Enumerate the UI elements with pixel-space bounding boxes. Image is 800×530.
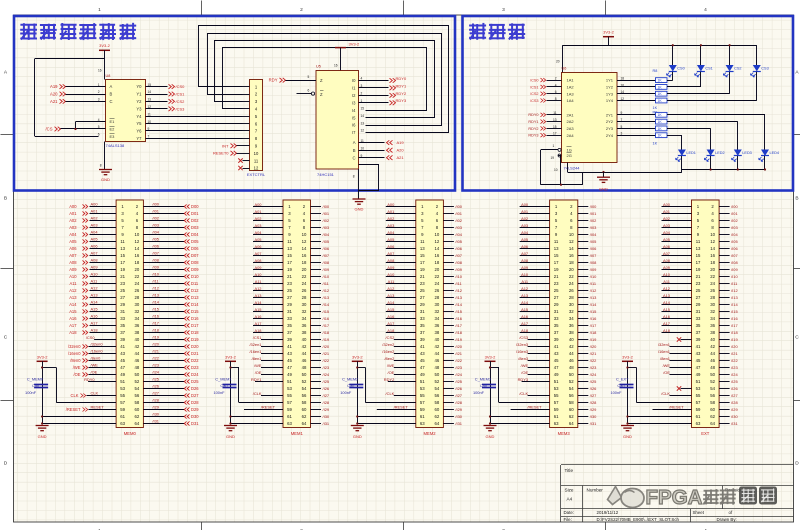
svg-text:54: 54 — [435, 386, 440, 391]
svg-text:A19: A19 — [50, 84, 58, 89]
svg-text:/I01: /I01 — [731, 211, 738, 216]
svg-text:13: 13 — [361, 121, 365, 125]
svg-text:10: 10 — [135, 232, 140, 237]
svg-text:/8en1: /8en1 — [252, 356, 262, 361]
svg-text:A11: A11 — [521, 279, 528, 284]
svg-text:/I29: /I29 — [323, 407, 330, 412]
svg-text:2Y1: 2Y1 — [606, 112, 614, 117]
svg-text:35: 35 — [120, 323, 125, 328]
svg-text:/I18: /I18 — [590, 330, 597, 335]
svg-text:/I23: /I23 — [323, 365, 330, 370]
svg-text:B: B — [4, 196, 7, 202]
svg-text:D26: D26 — [191, 386, 199, 391]
svg-text:/I08: /I08 — [590, 260, 597, 265]
svg-text:52: 52 — [435, 379, 440, 384]
svg-text:/I13: /I13 — [731, 295, 738, 300]
svg-text:29: 29 — [287, 302, 292, 307]
svg-text:25: 25 — [120, 288, 125, 293]
svg-text:45: 45 — [554, 358, 559, 363]
svg-text:18: 18 — [710, 260, 715, 265]
svg-text:A09: A09 — [521, 265, 528, 270]
svg-text:A10: A10 — [521, 272, 529, 277]
svg-text:35: 35 — [287, 323, 292, 328]
svg-text:24: 24 — [710, 281, 715, 286]
svg-text:1K: 1K — [658, 92, 663, 96]
svg-text:1K: 1K — [658, 120, 663, 124]
svg-text:37: 37 — [696, 330, 701, 335]
svg-text:52: 52 — [710, 379, 715, 384]
svg-text:19: 19 — [551, 156, 555, 160]
svg-text:/WE: /WE — [91, 363, 99, 368]
svg-text:A12: A12 — [663, 286, 670, 291]
svg-text:/CLK: /CLK — [253, 391, 262, 396]
svg-text:/I14: /I14 — [323, 302, 330, 307]
svg-text:A16: A16 — [521, 314, 529, 319]
svg-text:A03: A03 — [387, 223, 395, 228]
svg-text:D06: D06 — [191, 246, 199, 251]
svg-text:D07: D07 — [191, 253, 199, 258]
svg-text:51: 51 — [554, 379, 559, 384]
svg-text:1: 1 — [361, 99, 363, 103]
svg-text:46: 46 — [710, 358, 715, 363]
svg-text:3V3-2: 3V3-2 — [603, 30, 614, 35]
svg-text:9: 9 — [361, 154, 363, 158]
svg-text:20: 20 — [435, 267, 440, 272]
svg-text:A08: A08 — [254, 258, 262, 263]
svg-text:/I03: /I03 — [323, 225, 330, 230]
svg-text:50: 50 — [710, 372, 715, 377]
svg-text:26: 26 — [135, 288, 140, 293]
svg-text:44: 44 — [302, 351, 307, 356]
svg-text:14: 14 — [569, 246, 574, 251]
svg-text:11: 11 — [254, 158, 259, 163]
svg-text:GND: GND — [355, 207, 364, 212]
svg-text:/I24: /I24 — [152, 370, 159, 375]
svg-text:A02: A02 — [387, 216, 394, 221]
svg-text:C_MEM2: C_MEM2 — [342, 376, 358, 381]
svg-text:/I31: /I31 — [455, 421, 462, 426]
svg-text:/I09: /I09 — [323, 267, 330, 272]
svg-text:1: 1 — [553, 144, 555, 148]
svg-text:A02: A02 — [91, 216, 98, 221]
svg-text:61: 61 — [287, 414, 292, 419]
svg-text:C_MEM1: C_MEM1 — [215, 376, 231, 381]
svg-text:46: 46 — [302, 358, 307, 363]
svg-text:A01: A01 — [521, 209, 528, 214]
svg-text:/I23: /I23 — [152, 363, 159, 368]
svg-text:53: 53 — [287, 386, 292, 391]
svg-text:A01: A01 — [254, 209, 261, 214]
svg-text:62: 62 — [435, 414, 440, 419]
svg-text:A04: A04 — [521, 230, 529, 235]
svg-text:3V3-2: 3V3-2 — [352, 354, 363, 359]
svg-text:/I13: /I13 — [323, 295, 330, 300]
svg-text:A14: A14 — [663, 300, 671, 305]
svg-text:A09: A09 — [91, 265, 98, 270]
svg-text:/CS3: /CS3 — [519, 335, 529, 340]
svg-text:/I05: /I05 — [731, 239, 738, 244]
svg-text:17: 17 — [554, 260, 559, 265]
svg-text:17: 17 — [553, 132, 557, 136]
svg-text:27: 27 — [420, 295, 425, 300]
svg-text:/WE: /WE — [521, 363, 529, 368]
svg-text:12: 12 — [621, 97, 625, 101]
svg-text:23: 23 — [554, 281, 559, 286]
svg-text:30: 30 — [135, 302, 140, 307]
svg-text:14: 14 — [302, 246, 307, 251]
svg-text:/CS0: /CS0 — [530, 79, 538, 83]
svg-text:A18: A18 — [521, 328, 529, 333]
svg-text:16: 16 — [569, 253, 574, 258]
svg-text:/I12: /I12 — [152, 286, 159, 291]
svg-text:A: A — [110, 84, 113, 89]
svg-text:63: 63 — [120, 421, 125, 426]
svg-text:D15: D15 — [191, 309, 199, 314]
svg-text:/I12: /I12 — [323, 288, 330, 293]
svg-text:18: 18 — [569, 260, 574, 265]
svg-text:A03: A03 — [663, 223, 671, 228]
svg-text:C: C — [795, 335, 799, 341]
svg-text:A18: A18 — [254, 328, 262, 333]
svg-text:10: 10 — [361, 146, 365, 150]
svg-text:A13: A13 — [521, 293, 529, 298]
svg-text:51: 51 — [696, 379, 701, 384]
svg-text:36: 36 — [710, 323, 715, 328]
svg-text:2019/11/12: 2019/11/12 — [597, 510, 619, 515]
svg-text:9: 9 — [148, 127, 150, 131]
svg-text:A07: A07 — [91, 251, 98, 256]
svg-text:/I30: /I30 — [152, 412, 159, 417]
svg-text:Y5: Y5 — [136, 121, 142, 126]
svg-text:D13: D13 — [191, 295, 199, 300]
svg-text:58: 58 — [710, 400, 715, 405]
svg-text:/I11: /I11 — [731, 281, 737, 286]
svg-text:/I22: /I22 — [731, 358, 738, 363]
svg-text:56: 56 — [710, 393, 715, 398]
svg-text:E3: E3 — [110, 134, 116, 139]
svg-text:A11: A11 — [91, 279, 98, 284]
svg-text:A17: A17 — [69, 323, 77, 328]
svg-text:57: 57 — [696, 400, 701, 405]
svg-text:5: 5 — [98, 125, 100, 129]
svg-text:/I22: /I22 — [323, 358, 330, 363]
svg-text:/16en0: /16en0 — [91, 349, 104, 354]
svg-text:A20: A20 — [50, 92, 58, 97]
svg-text:15: 15 — [696, 253, 701, 258]
svg-text:24: 24 — [569, 281, 574, 286]
svg-text:29: 29 — [554, 302, 559, 307]
svg-text:58: 58 — [135, 400, 140, 405]
svg-text:D21: D21 — [191, 351, 199, 356]
svg-text:/I03: /I03 — [590, 225, 597, 230]
svg-text:55: 55 — [287, 393, 292, 398]
svg-text:/8en2: /8en2 — [384, 356, 394, 361]
svg-text:1K: 1K — [658, 113, 663, 117]
svg-text:/I08: /I08 — [455, 260, 462, 265]
svg-text:Cap: Cap — [347, 383, 354, 388]
svg-text:60: 60 — [435, 407, 440, 412]
svg-text:A13: A13 — [254, 293, 262, 298]
svg-text:A11: A11 — [255, 279, 262, 284]
svg-text:57: 57 — [420, 400, 425, 405]
svg-text:50: 50 — [302, 372, 307, 377]
svg-text:/I30: /I30 — [590, 414, 597, 419]
svg-text:/I24: /I24 — [323, 372, 330, 377]
svg-text:/I04: /I04 — [323, 232, 330, 237]
svg-text:55: 55 — [554, 393, 559, 398]
svg-text:2Y2: 2Y2 — [606, 119, 614, 124]
svg-text:29: 29 — [120, 302, 125, 307]
svg-text:/I13: /I13 — [590, 295, 597, 300]
svg-text:/I22: /I22 — [152, 356, 159, 361]
svg-text:1K: 1K — [658, 99, 663, 103]
svg-text:17: 17 — [120, 260, 125, 265]
svg-text:/32en3: /32en3 — [516, 342, 529, 347]
svg-text:/I09: /I09 — [731, 267, 738, 272]
svg-text:/I18: /I18 — [731, 330, 738, 335]
svg-text:/I07: /I07 — [590, 253, 597, 258]
svg-text:A09: A09 — [254, 265, 261, 270]
svg-text:/I11: /I11 — [455, 281, 461, 286]
svg-text:A04: A04 — [254, 230, 262, 235]
svg-text:11: 11 — [553, 111, 557, 115]
svg-text:/CS2: /CS2 — [530, 92, 538, 96]
svg-text:43: 43 — [554, 351, 559, 356]
svg-text:49: 49 — [696, 372, 701, 377]
svg-text:D05: D05 — [191, 239, 199, 244]
svg-text:/I28: /I28 — [590, 400, 597, 405]
svg-text:A00: A00 — [521, 202, 529, 207]
svg-text:33: 33 — [120, 316, 125, 321]
svg-text:/I27: /I27 — [590, 393, 597, 398]
svg-text:B: B — [795, 196, 798, 202]
svg-text:A09: A09 — [69, 267, 77, 272]
svg-text:61: 61 — [696, 414, 701, 419]
svg-text:38: 38 — [435, 330, 440, 335]
svg-text:10: 10 — [148, 120, 152, 124]
svg-text:A11: A11 — [663, 279, 670, 284]
svg-text:CS1: CS1 — [705, 67, 712, 71]
svg-text:CS2: CS2 — [734, 67, 741, 71]
svg-text:1A4: 1A4 — [567, 98, 575, 103]
svg-text:A14: A14 — [69, 302, 77, 307]
svg-text:/I13: /I13 — [455, 295, 462, 300]
svg-text:/I02: /I02 — [590, 218, 597, 223]
svg-text:/I00: /I00 — [323, 204, 330, 209]
svg-text:33: 33 — [554, 316, 559, 321]
svg-text:Y2: Y2 — [136, 99, 142, 104]
svg-text:A08: A08 — [69, 260, 77, 265]
svg-text:A04: A04 — [91, 230, 99, 235]
svg-text:/I19: /I19 — [590, 337, 597, 342]
svg-text:74LS244: 74LS244 — [564, 165, 581, 170]
svg-text:A11: A11 — [70, 281, 78, 286]
svg-text:100nF: 100nF — [25, 390, 37, 395]
svg-text:/I03: /I03 — [455, 225, 462, 230]
svg-text:A13: A13 — [663, 293, 671, 298]
svg-text:3V3-2: 3V3-2 — [225, 354, 236, 359]
svg-text:/I01: /I01 — [455, 211, 462, 216]
svg-text:A18: A18 — [91, 328, 99, 333]
svg-text:11: 11 — [148, 112, 152, 116]
svg-text:/CS1: /CS1 — [176, 92, 186, 97]
svg-text:4: 4 — [361, 77, 363, 81]
svg-text:/OE: /OE — [255, 370, 262, 375]
svg-text:57: 57 — [554, 400, 559, 405]
svg-text:3: 3 — [361, 84, 363, 88]
svg-text:U5: U5 — [316, 65, 321, 69]
svg-text:31: 31 — [287, 309, 292, 314]
svg-text:CS3: CS3 — [761, 67, 768, 71]
svg-text:FPGA: FPGA — [646, 486, 703, 509]
svg-text:33: 33 — [287, 316, 292, 321]
svg-text:/I16: /I16 — [590, 316, 597, 321]
svg-text:1K: 1K — [653, 141, 658, 145]
svg-text:A13: A13 — [387, 293, 395, 298]
svg-text:56: 56 — [435, 393, 440, 398]
svg-text:A07: A07 — [663, 251, 670, 256]
svg-text:A12: A12 — [387, 286, 394, 291]
svg-text:D24: D24 — [191, 372, 199, 377]
svg-text:44: 44 — [135, 351, 140, 356]
svg-text:/I23: /I23 — [455, 365, 462, 370]
svg-text:17: 17 — [420, 260, 425, 265]
svg-text:37: 37 — [120, 330, 125, 335]
svg-text:LED2: LED2 — [715, 151, 725, 155]
svg-text:/I10: /I10 — [152, 272, 159, 277]
svg-text:/I00: /I00 — [152, 202, 159, 207]
svg-text:39: 39 — [420, 337, 425, 342]
svg-text:51: 51 — [420, 379, 425, 384]
svg-text:27: 27 — [120, 295, 125, 300]
svg-text:/I10: /I10 — [455, 274, 462, 279]
svg-text:A4: A4 — [567, 497, 573, 502]
svg-text:1K: 1K — [653, 106, 658, 110]
svg-text:A04: A04 — [387, 230, 395, 235]
svg-text:28: 28 — [435, 295, 440, 300]
svg-text:10: 10 — [569, 232, 574, 237]
svg-text:19: 19 — [287, 267, 292, 272]
svg-text:D19: D19 — [191, 337, 199, 342]
svg-text:RESET0: RESET0 — [213, 151, 229, 156]
svg-text:/I28: /I28 — [152, 398, 159, 403]
svg-text:/I23: /I23 — [590, 365, 597, 370]
svg-text:/I12: /I12 — [731, 288, 738, 293]
svg-text:39: 39 — [554, 337, 559, 342]
svg-text:64: 64 — [569, 421, 574, 426]
svg-text:/I20: /I20 — [152, 342, 159, 347]
svg-text:27: 27 — [287, 295, 292, 300]
svg-text:21: 21 — [554, 274, 559, 279]
svg-text:40: 40 — [302, 337, 307, 342]
svg-text:44: 44 — [569, 351, 574, 356]
svg-text:/RESET: /RESET — [527, 405, 542, 410]
svg-text:57: 57 — [287, 400, 292, 405]
svg-text:A03: A03 — [254, 223, 262, 228]
svg-text:45: 45 — [287, 358, 292, 363]
svg-text:LED3: LED3 — [742, 151, 752, 155]
svg-text:100nF: 100nF — [213, 390, 225, 395]
svg-text:8: 8 — [353, 175, 355, 179]
svg-text:48: 48 — [302, 365, 307, 370]
svg-text:53: 53 — [554, 386, 559, 391]
svg-text:A03: A03 — [69, 225, 77, 230]
svg-text:2: 2 — [361, 92, 363, 96]
svg-text:A16: A16 — [387, 314, 395, 319]
svg-text:2A1: 2A1 — [567, 112, 575, 117]
svg-text:GND: GND — [486, 434, 495, 439]
svg-text:22: 22 — [135, 274, 140, 279]
svg-text:58: 58 — [435, 400, 440, 405]
svg-text:/I17: /I17 — [455, 323, 462, 328]
svg-text:1K: 1K — [658, 127, 663, 131]
svg-text:D31: D31 — [191, 421, 199, 426]
svg-text:/I09: /I09 — [455, 267, 462, 272]
svg-text:RESET: RESET — [91, 405, 105, 410]
svg-text:43: 43 — [696, 351, 701, 356]
svg-text:47: 47 — [554, 365, 559, 370]
svg-text:A17: A17 — [254, 321, 261, 326]
svg-text:59: 59 — [287, 407, 292, 412]
svg-text:48: 48 — [435, 365, 440, 370]
svg-text:30: 30 — [302, 302, 307, 307]
svg-text:/I17: /I17 — [152, 321, 159, 326]
svg-text:6: 6 — [308, 89, 310, 93]
svg-text:3V3-2: 3V3-2 — [349, 42, 360, 47]
svg-text:12: 12 — [302, 239, 307, 244]
svg-text:28: 28 — [135, 295, 140, 300]
svg-text:19: 19 — [554, 267, 559, 272]
svg-text:MEM2: MEM2 — [424, 431, 437, 436]
svg-text:46: 46 — [435, 358, 440, 363]
svg-text:12: 12 — [710, 239, 715, 244]
svg-text:57: 57 — [120, 400, 125, 405]
svg-text:40: 40 — [135, 337, 140, 342]
svg-text:A02: A02 — [663, 216, 670, 221]
svg-text:A14: A14 — [387, 300, 395, 305]
svg-text:Y3: Y3 — [136, 106, 142, 111]
svg-text:/I24: /I24 — [590, 372, 597, 377]
svg-text:A13: A13 — [69, 295, 77, 300]
svg-text:/I07: /I07 — [323, 253, 330, 258]
svg-text:58: 58 — [302, 400, 307, 405]
svg-text:55: 55 — [420, 393, 425, 398]
svg-text:/16en1: /16en1 — [658, 349, 670, 354]
svg-text:A18: A18 — [387, 328, 395, 333]
svg-text:32: 32 — [302, 309, 307, 314]
svg-text:INT: INT — [222, 143, 229, 148]
svg-text:34: 34 — [710, 316, 715, 321]
svg-text:A05: A05 — [254, 237, 262, 242]
svg-text:/I22: /I22 — [590, 358, 597, 363]
svg-text:4: 4 — [98, 118, 100, 122]
svg-text:D02: D02 — [191, 218, 199, 223]
svg-text:/I20: /I20 — [590, 344, 597, 349]
svg-text:/RESET: /RESET — [66, 407, 81, 412]
svg-text:13: 13 — [287, 246, 292, 251]
svg-text:9: 9 — [621, 111, 623, 115]
svg-text:B: B — [110, 92, 113, 97]
svg-text:15: 15 — [420, 253, 425, 258]
svg-text:/16en1: /16en1 — [249, 349, 261, 354]
svg-text:/I08: /I08 — [323, 260, 330, 265]
svg-text:1G: 1G — [567, 148, 572, 153]
svg-text:/I14: /I14 — [731, 302, 738, 307]
svg-text:/I31: /I31 — [152, 419, 159, 424]
svg-text:A16: A16 — [91, 314, 99, 319]
svg-text:/OE: /OE — [73, 372, 80, 377]
svg-text:EXTCTRL: EXTCTRL — [247, 172, 266, 177]
